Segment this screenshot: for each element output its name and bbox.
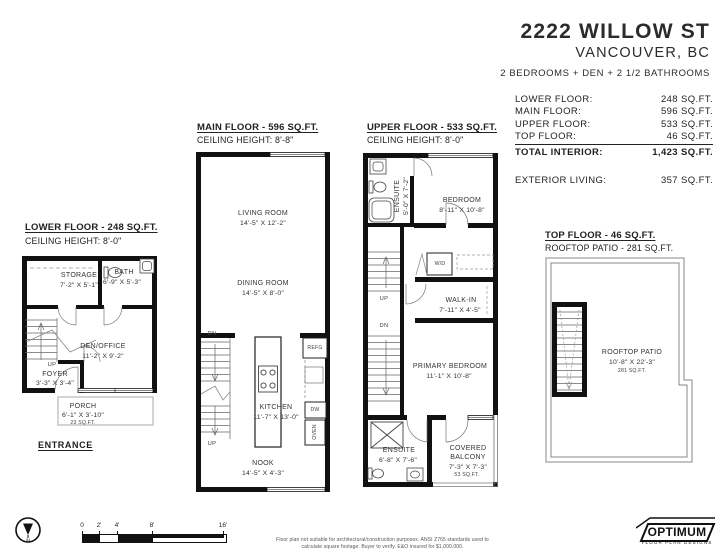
lower-floor-title: LOWER FLOOR - 248 SQ.FT. xyxy=(25,222,158,233)
den-office-label: DEN/OFFICE xyxy=(80,342,125,351)
foyer-dims: 3'-3" X 3'-4" xyxy=(36,379,74,388)
row-label: TOP FLOOR: xyxy=(515,131,576,144)
disclaimer-line2: calculate square footage. Buyer to verif… xyxy=(250,544,515,551)
ensuite-bottom-label: ENSUITE xyxy=(383,446,415,455)
logo-wordmark: OPTIMUM xyxy=(641,525,713,539)
rooftop-patio-label: ROOFTOP PATIO xyxy=(602,348,662,357)
main-stairs xyxy=(201,338,230,439)
balcony-label-line2: BALCONY xyxy=(450,453,486,462)
toilet-icon xyxy=(373,469,384,478)
property-summary: 2 BEDROOMS + DEN + 2 1/2 BATHROOMS xyxy=(500,68,710,79)
rooftop-patio-dims: 10'-8" X 22'-3" xyxy=(609,358,655,367)
upper-stairs-up-label: UP xyxy=(380,296,389,303)
den-office-dims: 11'-2" X 9'-2" xyxy=(82,352,123,361)
ensuite-dims: 5'-0" X 7'-2" xyxy=(402,177,411,215)
disclaimer: Floor plan not suitable for architectura… xyxy=(250,537,515,551)
balcony-dims: 7'-3" X 7'-3" xyxy=(449,463,487,472)
disclaimer-line1: Floor plan not suitable for architectura… xyxy=(250,537,515,544)
fridge-label: REFG xyxy=(307,345,322,351)
level-break-line xyxy=(201,386,230,400)
row-value: 596 SQ.FT. xyxy=(661,106,713,118)
main-stairs-dn-label: DN xyxy=(208,331,217,338)
walkin-label: WALK-IN xyxy=(445,296,476,305)
row-label: UPPER FLOOR: xyxy=(515,119,591,131)
sink-icon xyxy=(407,468,423,481)
row-label: MAIN FLOOR: xyxy=(515,106,581,118)
upper-floor-ceiling: CEILING HEIGHT: 8'-0" xyxy=(367,135,464,145)
row-value: 248 SQ.FT. xyxy=(661,94,713,106)
shower-icon xyxy=(371,422,403,448)
porch-area: 23 SQ.FT. xyxy=(70,420,95,427)
property-city: VANCOUVER, BC xyxy=(500,45,710,61)
washer-dryer-label: W/D xyxy=(435,261,446,267)
living-room-label: LIVING ROOM xyxy=(238,209,288,218)
lower-floor-ceiling: CEILING HEIGHT: 8'-0" xyxy=(25,236,122,246)
bathtub-icon xyxy=(369,198,394,222)
bath-label: BATH xyxy=(114,268,133,277)
row-value: 357 SQ.FT. xyxy=(661,175,713,187)
counter-outline xyxy=(305,360,323,400)
row-label: TOTAL INTERIOR: xyxy=(515,147,603,159)
oven-label: OVEN xyxy=(312,424,318,440)
nook-label: NOOK xyxy=(252,459,274,468)
bedroom-dims: 8'-11" X 10'-8" xyxy=(439,206,484,215)
header: 2222 WILLOW ST VANCOUVER, BC 2 BEDROOMS … xyxy=(500,20,710,79)
primary-bedroom-label: PRIMARY BEDROOM xyxy=(413,362,487,371)
floor-plan-page: 2222 WILLOW ST VANCOUVER, BC 2 BEDROOMS … xyxy=(0,0,725,560)
table-row: LOWER FLOOR:248 SQ.FT. xyxy=(515,94,713,106)
scale-bar: 0 2' 4' 8' 16' xyxy=(80,522,230,544)
logo-tagline: FLOOR PLAN DESIGNS xyxy=(641,540,713,545)
main-floor-ceiling: CEILING HEIGHT: 8'-8" xyxy=(197,135,294,145)
ensuite-top-fixtures xyxy=(369,159,394,222)
top-stair-box xyxy=(552,302,587,397)
scale-tick-label: 16' xyxy=(219,522,227,529)
bifold-door xyxy=(416,254,427,275)
top-floor-title: TOP FLOOR - 46 SQ.FT. xyxy=(545,230,655,241)
kitchen-label: KITCHEN xyxy=(260,403,293,412)
main-floor-title: MAIN FLOOR - 596 SQ.FT. xyxy=(197,122,318,133)
dining-room-label: DINING ROOM xyxy=(237,279,289,288)
foyer-label: FOYER xyxy=(42,370,68,379)
scale-segment xyxy=(118,535,153,542)
table-row-exterior: EXTERIOR LIVING:357 SQ.FT. xyxy=(515,175,713,187)
scale-tick-label: 4' xyxy=(115,522,120,529)
lower-window xyxy=(78,389,153,393)
primary-bedroom-dims: 11'-1" X 10'-8" xyxy=(426,372,471,381)
scale-segment-half xyxy=(153,535,224,538)
row-label: LOWER FLOOR: xyxy=(515,94,593,106)
toilet-tank xyxy=(369,181,373,193)
balcony-area: 53 SQ.FT. xyxy=(454,472,479,479)
north-arrow-icon: N xyxy=(13,516,43,548)
row-value: 1,423 SQ.FT. xyxy=(652,147,713,159)
row-value: 46 SQ.FT. xyxy=(667,131,713,144)
lower-stairs-up-label: UP xyxy=(48,362,57,369)
main-stairs-up-label: UP xyxy=(208,441,217,448)
nook-dims: 14'-5" X 4'-3" xyxy=(242,469,284,478)
scale-segment xyxy=(83,535,100,542)
rooftop-patio-area: 281 SQ.FT. xyxy=(618,368,646,375)
ensuite-bottom-dims: 6'-8" X 7'-6" xyxy=(379,456,417,465)
ensuite-bottom-fixtures xyxy=(368,468,423,481)
table-row: TOP FLOOR:46 SQ.FT. xyxy=(515,131,713,145)
table-row-total: TOTAL INTERIOR:1,423 SQ.FT. xyxy=(515,147,713,159)
row-value: 533 SQ.FT. xyxy=(661,119,713,131)
row-label: EXTERIOR LIVING: xyxy=(515,175,606,187)
toilet-icon xyxy=(374,182,386,192)
dining-room-dims: 14'-5" X 8'-0" xyxy=(242,289,284,298)
kitchen-dims: 11'-7" X 13'-0" xyxy=(253,413,298,422)
closet-dashed xyxy=(457,255,493,269)
dishwasher-label: DW xyxy=(310,407,319,413)
scale-tick-label: 0 xyxy=(80,522,84,529)
storage-dims: 7'-2" X 5'-1" xyxy=(60,281,98,290)
table-row: MAIN FLOOR:596 SQ.FT. xyxy=(515,106,713,118)
area-summary-table: LOWER FLOOR:248 SQ.FT. MAIN FLOOR:596 SQ… xyxy=(515,94,713,187)
storage-label: STORAGE xyxy=(61,271,97,280)
compass-n-label: N xyxy=(26,539,30,545)
upper-stairs-dn-label: DN xyxy=(380,323,389,330)
scale-bar-strip xyxy=(82,534,227,543)
toilet-tank xyxy=(368,468,372,479)
porch-dims: 6'-1" X 3'-10" xyxy=(62,411,104,420)
upper-floor-title: UPPER FLOOR - 533 SQ.FT. xyxy=(367,122,497,133)
table-row: UPPER FLOOR:533 SQ.FT. xyxy=(515,119,713,131)
bath-dims: 6'-9" X 5'-3" xyxy=(103,278,141,287)
ensuite-label: ENSUITE xyxy=(393,177,402,215)
balcony-label-line1: COVERED xyxy=(450,444,487,453)
ensuite-top-label-group: ENSUITE 5'-0" X 7'-2" xyxy=(393,177,411,215)
porch-label: PORCH xyxy=(70,402,97,411)
bedroom-label: BEDROOM xyxy=(443,196,481,205)
scale-tick-label: 2' xyxy=(97,522,102,529)
property-address: 2222 WILLOW ST xyxy=(500,20,710,44)
entrance-label: ENTRANCE xyxy=(38,440,93,450)
living-room-dims: 14'-5" X 12'-2" xyxy=(240,219,286,228)
upper-floor-plan xyxy=(360,148,503,493)
scale-tick-label: 8' xyxy=(150,522,155,529)
sink-icon xyxy=(140,259,154,273)
walkin-dims: 7'-11" X 4'-5" xyxy=(439,306,480,315)
sink-icon xyxy=(370,159,386,174)
